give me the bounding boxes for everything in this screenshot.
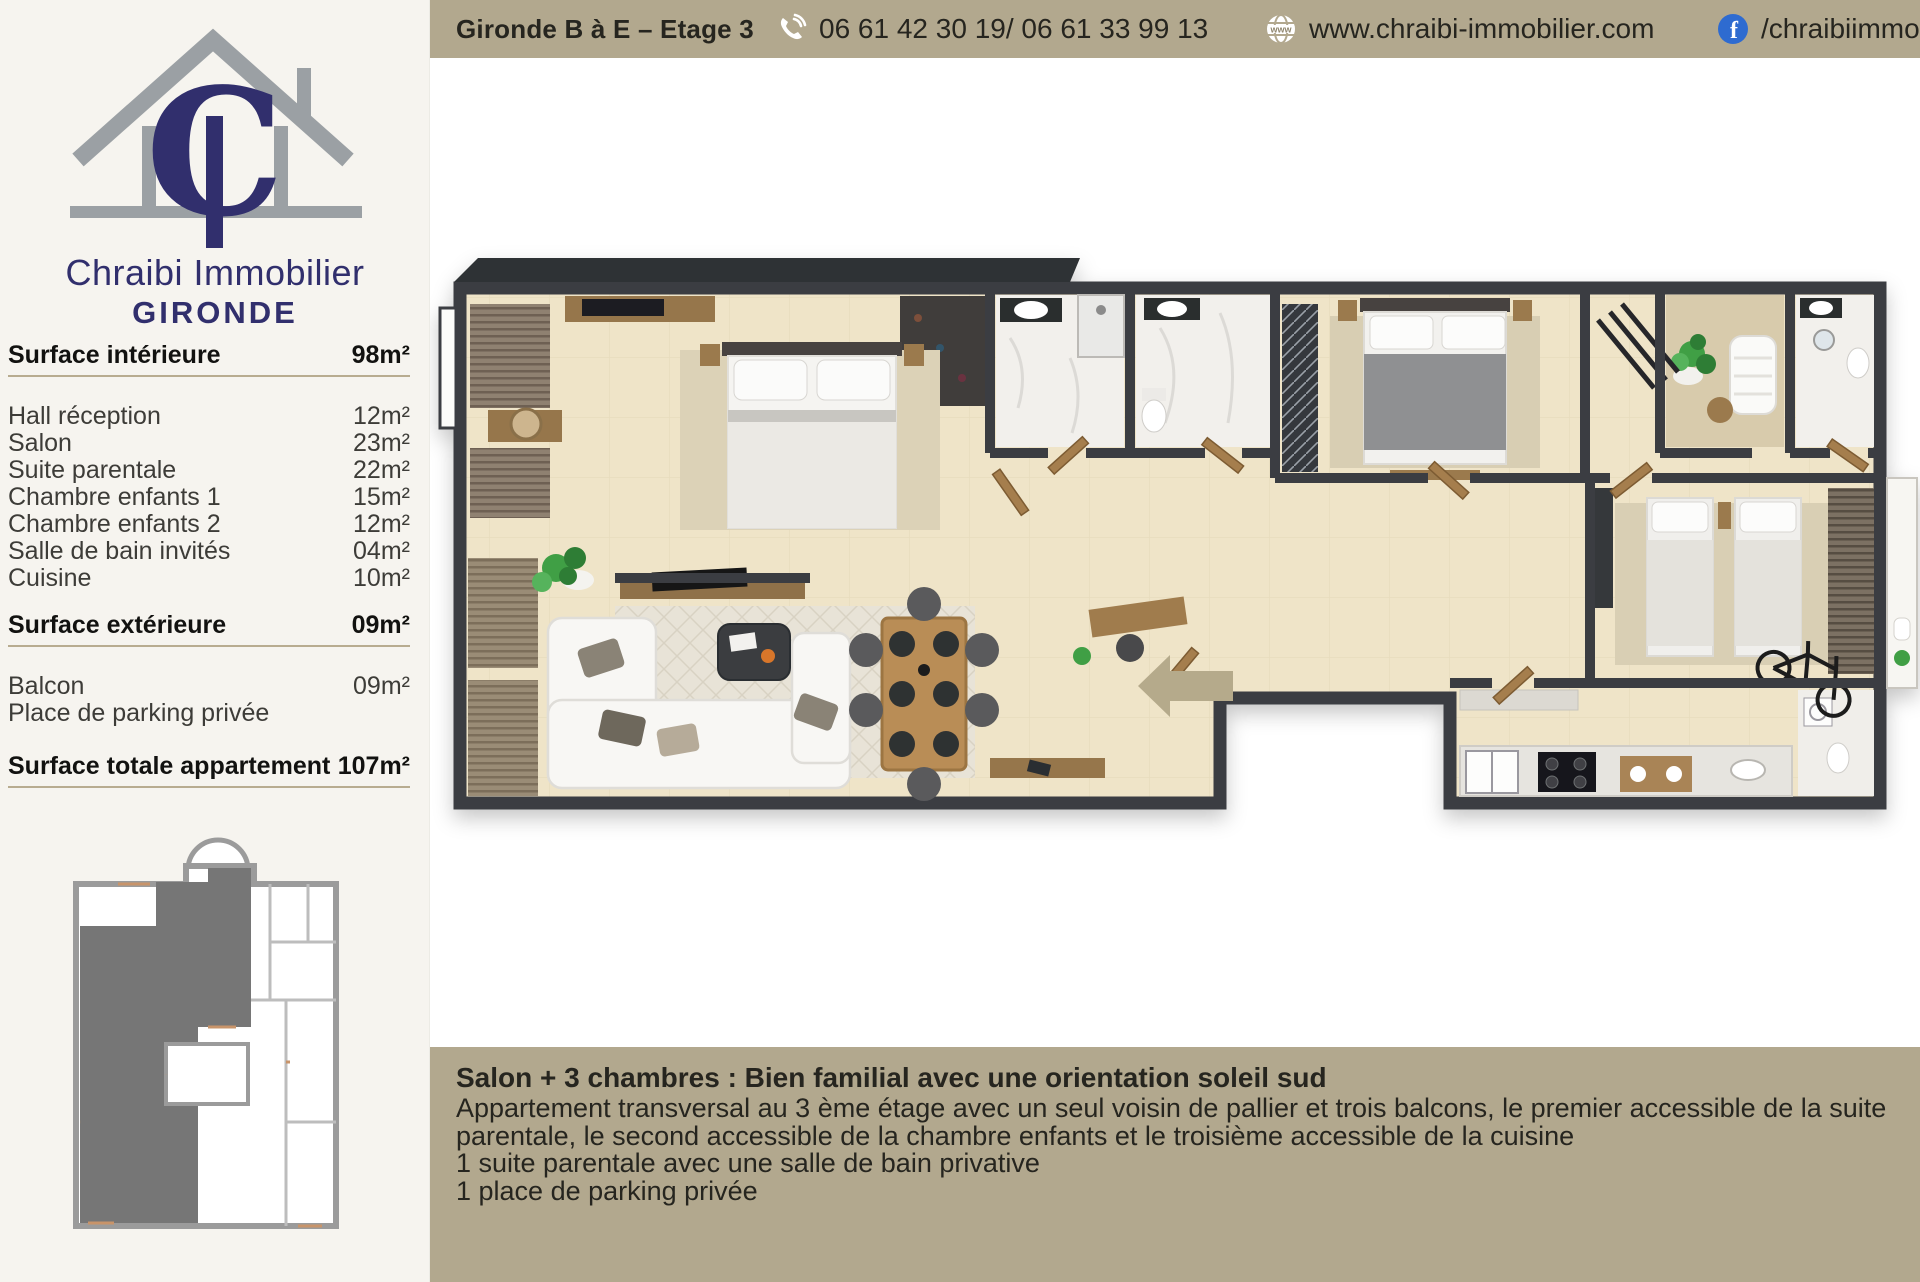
open-wardrobe	[1282, 304, 1318, 472]
wardrobe-slats	[1828, 488, 1874, 674]
brand-name: Chraibi Immobilier	[0, 252, 430, 294]
row-label: Salle de bain invités	[8, 538, 230, 565]
curtain-slats	[468, 558, 538, 668]
logo-letter-i-stem	[206, 116, 223, 248]
table-row: Cuisine 10m²	[8, 565, 410, 592]
table-row: Chambre enfants 1 15m²	[8, 484, 410, 511]
row-value: 22m²	[353, 457, 410, 484]
side-table	[1707, 397, 1733, 423]
table-row: Suite parentale 22m²	[8, 457, 410, 484]
phone-icon	[773, 11, 809, 47]
dining-chair	[907, 767, 941, 801]
bathroom-guest	[1136, 295, 1270, 447]
svg-text:www: www	[1269, 25, 1292, 35]
bed-throw	[728, 410, 896, 422]
toilet	[1827, 743, 1849, 773]
sidebar: C Chraibi Immobilier GIRONDE Surface int…	[0, 0, 430, 1282]
table-row: Chambre enfants 2 12m²	[8, 511, 410, 538]
tv	[582, 299, 664, 316]
headboard	[722, 342, 902, 356]
section-label: Surface intérieure	[8, 342, 221, 369]
balcony-right	[1887, 478, 1917, 688]
toilet	[1142, 400, 1166, 432]
plant	[1073, 647, 1091, 665]
suite-balcony	[1666, 295, 1784, 447]
toilet	[1847, 348, 1869, 378]
nightstand	[1718, 502, 1731, 529]
dining-chair	[965, 693, 999, 727]
row-label: Chambre enfants 1	[8, 484, 221, 511]
house-logo-icon: C	[50, 18, 380, 248]
website-contact[interactable]: www www.chraibi-immobilier.com	[1263, 0, 1654, 58]
building-key-plan	[58, 822, 353, 1252]
duvet	[1647, 540, 1713, 646]
sink	[1014, 301, 1048, 319]
table-row: Place de parking privée	[8, 700, 410, 727]
company-logo: C	[50, 18, 380, 248]
dining-chair	[849, 693, 883, 727]
dining-chair	[965, 633, 999, 667]
row-value: 04m²	[353, 538, 410, 565]
section-value: 09m²	[352, 612, 410, 639]
dining-chair	[907, 587, 941, 621]
listing-feature: 1 place de parking privée	[456, 1178, 1901, 1206]
svg-text:f: f	[1730, 18, 1739, 44]
top-parapet	[454, 258, 1080, 282]
curtain-slats	[468, 680, 538, 796]
row-label: Hall réception	[8, 403, 161, 430]
section-surface-totale: Surface totale appartement 107m²	[8, 753, 410, 788]
section-value: 98m²	[352, 342, 410, 369]
row-label: Chambre enfants 2	[8, 511, 221, 538]
pillow	[1442, 316, 1505, 349]
row-value: 10m²	[353, 565, 410, 592]
floor-plan-3d	[430, 58, 1920, 1047]
wardrobe-slats	[470, 448, 550, 518]
table-row: Hall réception 12m²	[8, 403, 410, 430]
row-label: Place de parking privée	[8, 700, 269, 727]
pillow	[817, 360, 890, 400]
row-value: 12m²	[353, 403, 410, 430]
cooktop	[1538, 752, 1596, 792]
flyer-page: { "sidebar": { "brand": { "name": "Chrai…	[0, 0, 1920, 1282]
kids-bedroom	[1593, 488, 1874, 674]
nightstand	[1338, 300, 1357, 321]
nightstand	[1513, 300, 1532, 321]
row-value: 12m²	[353, 511, 410, 538]
bathroom-suite	[996, 295, 1124, 447]
facebook-handle: /chraibiimmobilier	[1761, 13, 1920, 45]
duvet	[1735, 540, 1801, 646]
surface-table: Surface intérieure 98m² Hall réception 1…	[8, 342, 410, 788]
closet	[1593, 488, 1613, 608]
row-label: Salon	[8, 430, 72, 457]
row-value: 23m²	[353, 430, 410, 457]
dining-chair	[849, 633, 883, 667]
duvet	[728, 410, 896, 528]
headboard	[1360, 298, 1510, 312]
courtyard	[166, 1044, 248, 1104]
nightstand	[904, 344, 924, 366]
pillow	[734, 360, 807, 400]
listing-feature: 1 suite parentale avec une salle de bain…	[456, 1150, 1901, 1178]
website-url: www.chraibi-immobilier.com	[1309, 13, 1654, 45]
table-row: Balcon 09m²	[8, 673, 410, 700]
sink	[1809, 301, 1833, 315]
pillow	[1740, 502, 1796, 532]
toilet-tank	[1142, 388, 1166, 401]
section-value: 107m²	[338, 753, 410, 780]
plan-area	[430, 58, 1920, 1047]
listing-headline: Salon + 3 chambres : Bien familial avec …	[456, 1061, 1920, 1095]
row-value: 15m²	[353, 484, 410, 511]
section-label: Surface extérieure	[8, 612, 226, 639]
gray-duvet	[1364, 354, 1506, 450]
nightstand	[700, 344, 720, 366]
mirror	[511, 409, 541, 439]
table-row: Salle de bain invités 04m²	[8, 538, 410, 565]
sink	[1157, 301, 1187, 317]
wardrobe-slats	[470, 304, 550, 408]
shower	[1078, 295, 1124, 357]
row-label: Suite parentale	[8, 457, 176, 484]
sink	[1731, 760, 1765, 780]
listing-description: Appartement transversal au 3 ème étage a…	[456, 1095, 1901, 1150]
plan-title: Gironde B à E – Etage 3	[456, 14, 754, 45]
globe-icon: www	[1263, 11, 1299, 47]
pillow	[1652, 502, 1708, 532]
phone-contact[interactable]: 06 61 42 30 19/ 06 61 33 99 13	[773, 0, 1208, 58]
desk-chair	[1116, 634, 1144, 662]
brand-region: GIRONDE	[0, 295, 430, 331]
mirror	[1814, 330, 1834, 350]
bathroom-top-right	[1796, 295, 1874, 447]
section-label: Surface totale appartement	[8, 753, 330, 780]
facebook-contact[interactable]: f /chraibiimmobilier	[1715, 0, 1920, 58]
pillow	[1370, 316, 1433, 349]
top-bar: Gironde B à E – Etage 3 06 61 42 30 19/ …	[430, 0, 1920, 58]
counter-top	[1460, 690, 1578, 710]
section-surface-interieure: Surface intérieure 98m²	[8, 342, 410, 377]
table-row: Salon 23m²	[8, 430, 410, 457]
row-label: Cuisine	[8, 565, 91, 592]
balcony-left	[440, 308, 456, 428]
facebook-icon: f	[1715, 11, 1751, 47]
description-bar: Salon + 3 chambres : Bien familial avec …	[430, 1047, 1920, 1282]
row-value: 09m²	[353, 673, 410, 700]
phone-number: 06 61 42 30 19/ 06 61 33 99 13	[819, 13, 1208, 45]
row-label: Balcon	[8, 673, 84, 700]
section-surface-exterieure: Surface extérieure 09m²	[8, 612, 410, 647]
